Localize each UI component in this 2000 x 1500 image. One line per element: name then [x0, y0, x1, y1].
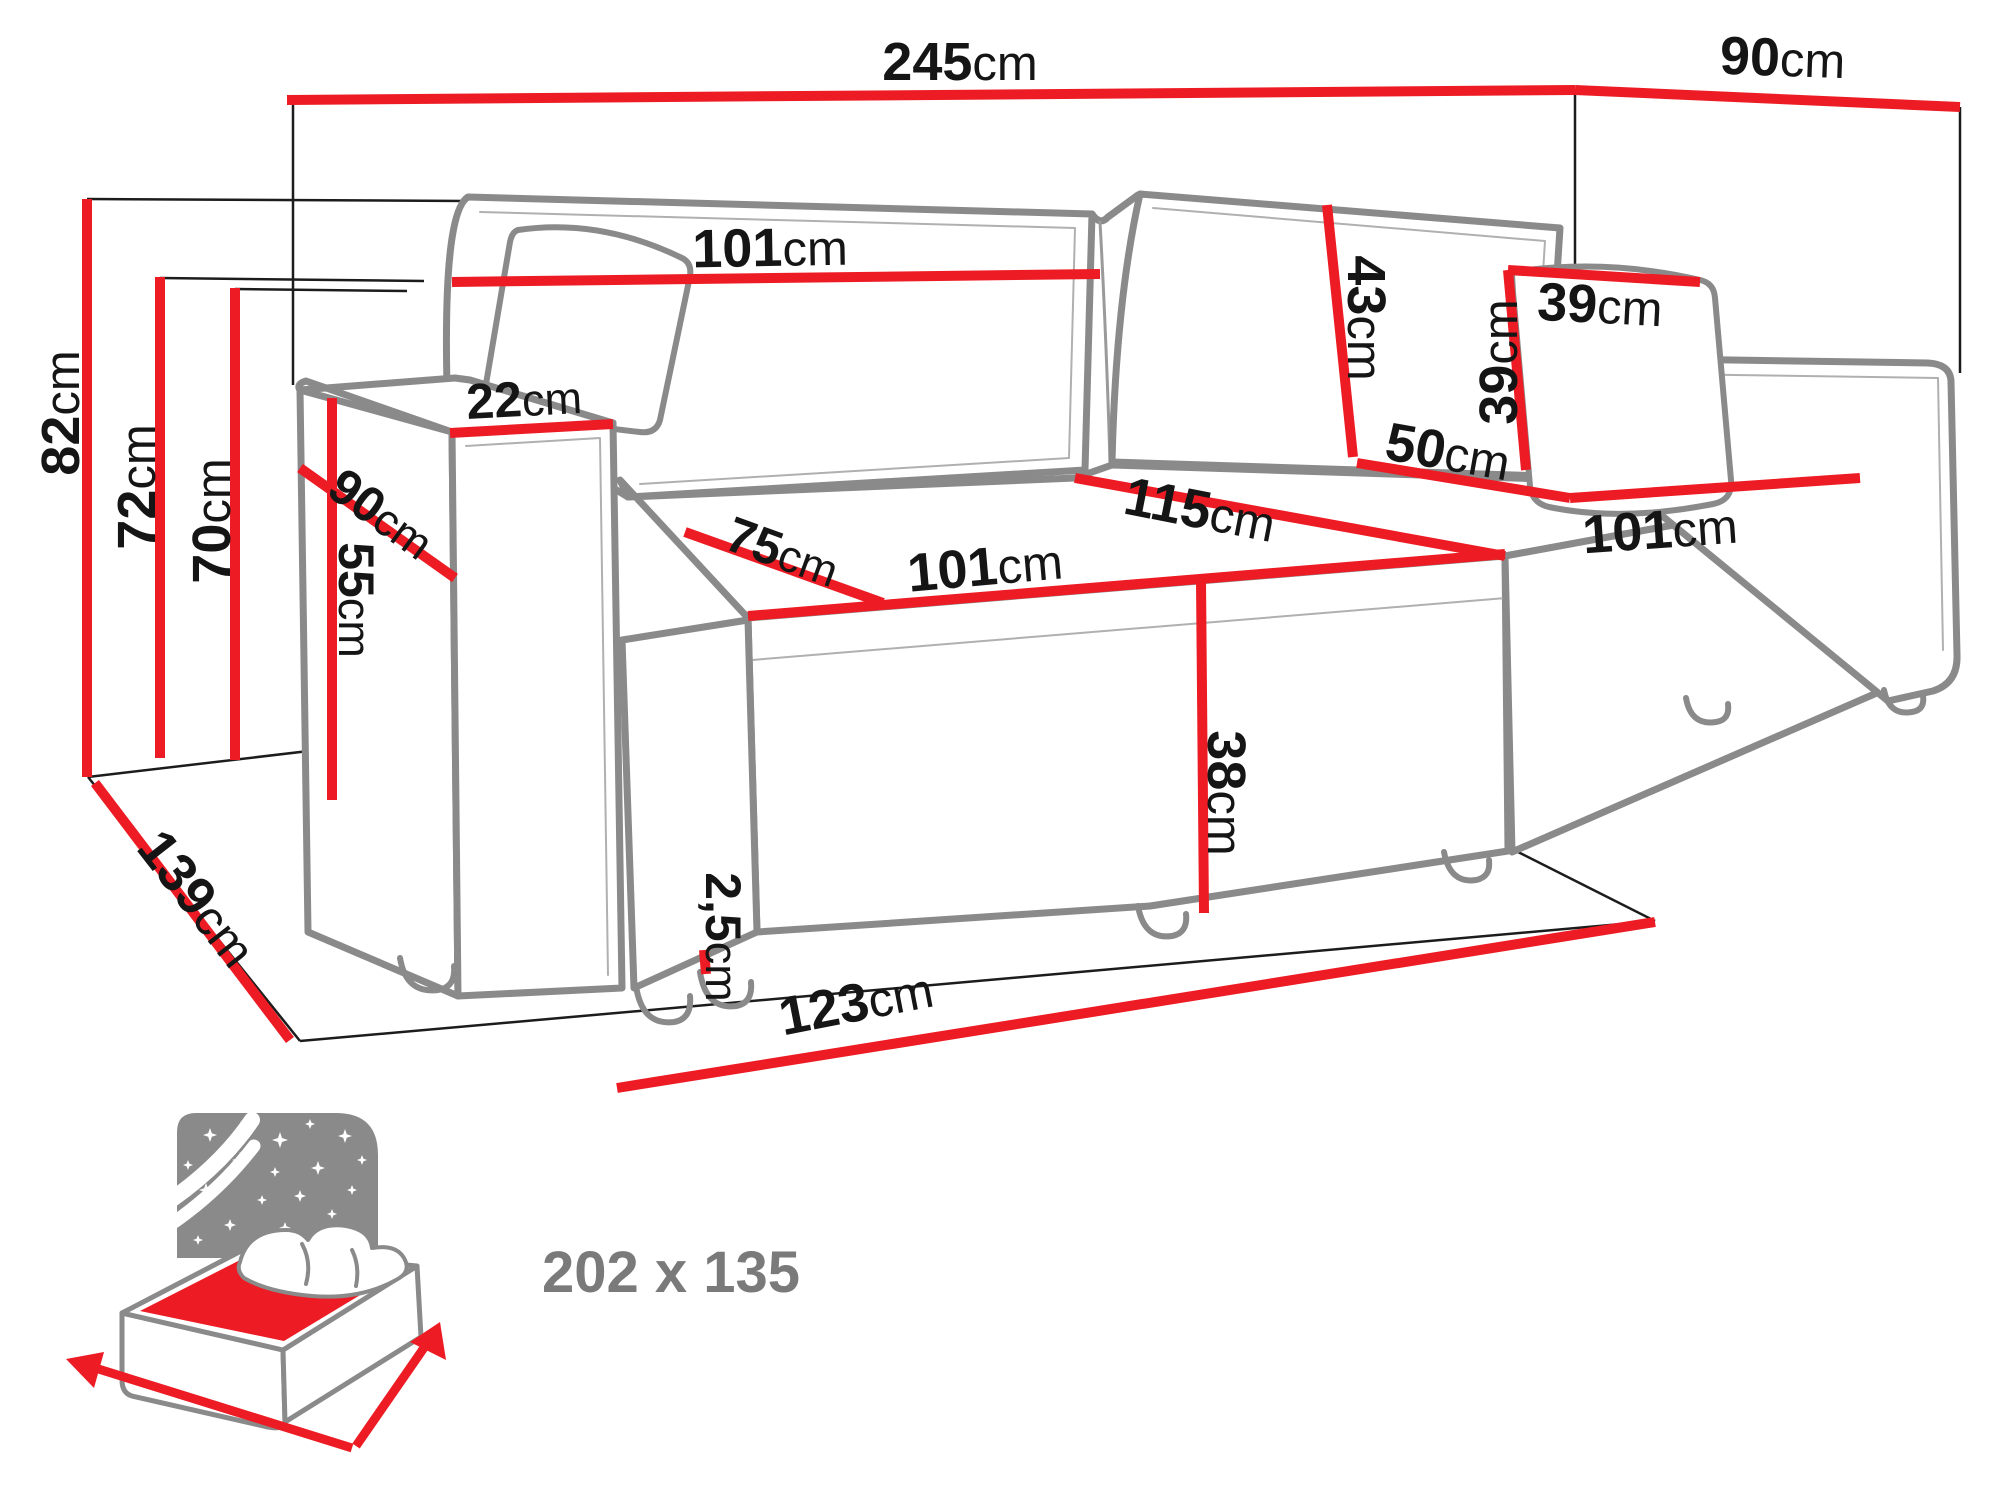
- label-seat-front-height: 38cm: [1196, 730, 1256, 855]
- dim-line-123: [617, 922, 1655, 1088]
- label-backrest-height: 72cm: [107, 424, 167, 549]
- sofa-leg: [1138, 906, 1186, 936]
- sleeping-function-icon: [66, 1113, 446, 1448]
- label-total-width: 245cm: [882, 32, 1037, 92]
- sofa-diagram-svg: 245cm 90cm 82cm 72cm 70cm 139cm 101cm 22…: [0, 0, 2000, 1500]
- sleeping-area-label: 202 x 135: [542, 1240, 800, 1305]
- label-overall-height: 82cm: [31, 350, 91, 475]
- label-chaise-seat-width: 101cm: [1580, 495, 1739, 566]
- bed-duvet: [239, 1225, 407, 1296]
- label-leg-height: 2,5cm: [695, 872, 751, 1002]
- label-armrest-top-width: 22cm: [465, 368, 583, 430]
- label-pillow-height: 39cm: [1469, 299, 1529, 424]
- label-front-edge-width: 123cm: [774, 959, 938, 1048]
- label-back-cushion-height: 43cm: [1336, 255, 1396, 380]
- label-total-depth: 90cm: [1719, 26, 1846, 90]
- label-floor-depth: 139cm: [126, 819, 269, 978]
- left-armrest-front: [452, 423, 622, 996]
- label-armrest-height: 55cm: [328, 542, 384, 658]
- label-pillow-width: 39cm: [1536, 272, 1664, 338]
- label-seat-back-height: 70cm: [182, 458, 242, 583]
- sofa-leg: [636, 986, 690, 1022]
- seat-front-face: [748, 556, 1508, 932]
- dim-line-total-depth: [1575, 90, 1960, 107]
- label-backrest-width: 101cm: [692, 217, 848, 280]
- sofa-outline: [299, 194, 1957, 1022]
- dimension-drawing: 245cm 90cm 82cm 72cm 70cm 139cm 101cm 22…: [0, 0, 2000, 1500]
- backrest-crease: [1092, 195, 1138, 221]
